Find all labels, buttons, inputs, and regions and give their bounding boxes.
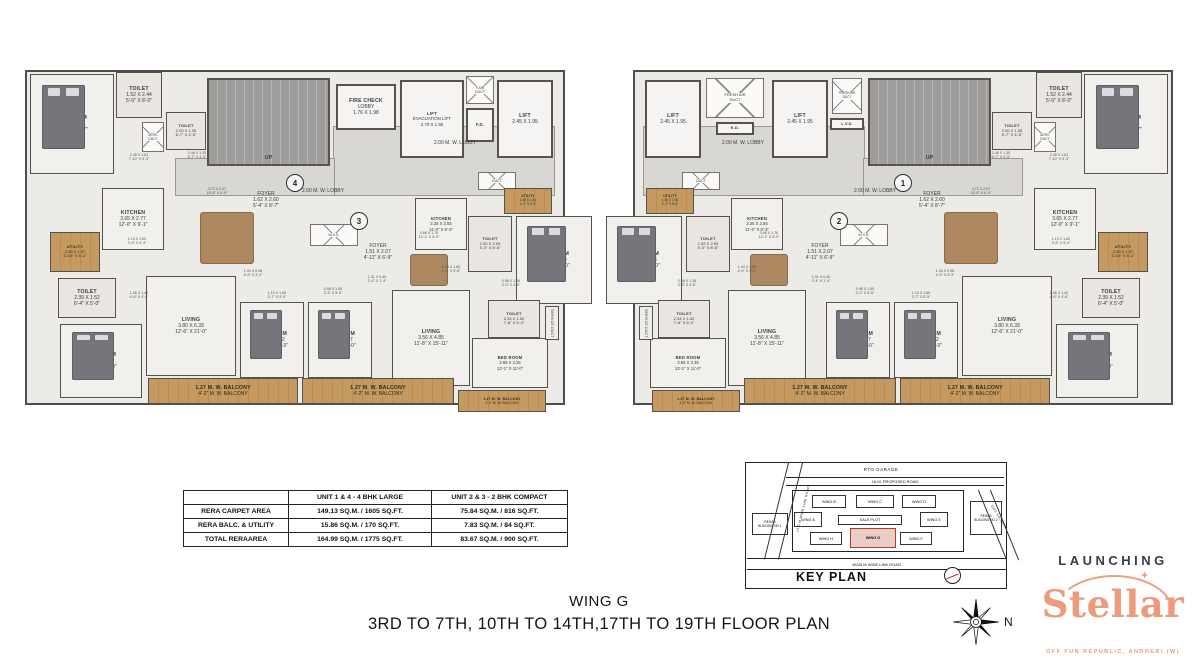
kp-wing-d: WING D bbox=[902, 495, 936, 508]
toilet: TOILET2.34 X 1.527'-8" X 5'-0" bbox=[658, 300, 710, 338]
utility: UTILITY2.09 X 1.576'-10" X 5'-2" bbox=[1098, 232, 1148, 272]
dim-note: 4.72 X 2.0715'-6" X 6'-9" bbox=[960, 184, 1002, 198]
fresh-air-duct: FRESH AIRDUCT bbox=[706, 78, 764, 118]
kp-wing-c: WING C bbox=[856, 495, 894, 508]
area-table-cell bbox=[184, 491, 289, 505]
kitchen: KITCHEN3.35 X 2.5511'-0" X 8'-3" bbox=[415, 198, 467, 250]
unit-number: 2 bbox=[830, 212, 848, 230]
balcony: 1.27 M. W. BALCONY4'-2" M. W. BALCONY bbox=[148, 378, 298, 404]
staircase: UP bbox=[207, 78, 330, 166]
bed-icon bbox=[250, 310, 282, 359]
area-table-cell: 75.84 SQ.M. / 816 SQ.FT. bbox=[432, 505, 568, 519]
bedroom: BED ROOM3.96 X 3.3513'-1" X 11'-0" bbox=[650, 338, 726, 388]
dim-note: 0.98 X 1.363'-3" X 4'-6" bbox=[490, 276, 532, 290]
dining-table bbox=[944, 212, 998, 264]
bed-icon bbox=[318, 310, 350, 359]
bedroom: BED ROOM3.17 X 3.1210'-5" X 10'-3" bbox=[240, 302, 304, 378]
brand-name: Stellar bbox=[1028, 582, 1198, 626]
sparkle-icon: ✦ bbox=[1140, 569, 1149, 582]
foyer: FOYER1.51 X 2.074'-11" X 6'-9" bbox=[352, 234, 404, 270]
dim-note: 2.35 X 1.617'-10" X 5'-3" bbox=[1038, 150, 1080, 164]
dim-note: 1.36 X 1.424'-6" X 4'-8" bbox=[1038, 288, 1080, 302]
kp-wing-b: WING B bbox=[812, 495, 846, 508]
bedroom: BED ROOM3.35 X 4.2711'-0" X 14'-0" bbox=[826, 302, 890, 378]
kp-road-line bbox=[764, 462, 789, 559]
toilet: TOILET1.52 X 2.595'-0" X 8'-6" bbox=[686, 216, 730, 272]
balcony: 1.27 M. W. BALCONY4'-2" M. W. BALCONY bbox=[900, 378, 1050, 404]
dim-note: 0.98 X 1.653'-3" X 5'-5" bbox=[844, 284, 886, 298]
living-room: LIVING3.56 X 4.8511'-8" X 15'-11" bbox=[728, 290, 806, 386]
staircase: UP bbox=[868, 78, 991, 166]
kp-proposed-road: 16 M. PROPOSED ROAD bbox=[786, 477, 1004, 486]
bedroom: BED ROOM3.35 X 3.6511'-0" X 12'-0" bbox=[606, 216, 682, 304]
toilet: TOILET2.00 X 1.356'-7" X 4'-5" bbox=[992, 112, 1032, 150]
dim-note: 1.01 X 0.403'-4" X 1'-4" bbox=[800, 272, 842, 286]
dim-note: 2.46 X 1.356'-7" X 4'-5" bbox=[980, 148, 1022, 162]
area-table-cell: 149.13 SQ.M. / 1605 SQ.FT. bbox=[289, 505, 432, 519]
dim-note: 1.10 X 1.663'-7" X 5'-5" bbox=[256, 288, 298, 302]
bedroom: BED ROOM3.71 X 4.1512'-2" X 13'-7" bbox=[30, 74, 114, 174]
kitchen: KITCHEN3.35 X 2.5511'-0" X 8'-3" bbox=[731, 198, 783, 250]
service-duct: SERVICE DUCT bbox=[639, 306, 653, 340]
lv-duct: L.V.D. bbox=[830, 118, 864, 130]
bed-icon bbox=[42, 85, 85, 150]
dim-note: 4.72 X 2.0715'-6" X 6'-9" bbox=[196, 184, 238, 198]
area-table-cell: 164.99 SQ.M. / 1775 SQ.FT. bbox=[289, 533, 432, 547]
balcony: 1.27 M. W. BALCONY4'-2" M. W. BALCONY bbox=[744, 378, 896, 404]
rera-area-table: UNIT 1 & 4 - 4 BHK LARGEUNIT 2 & 3 - 2 B… bbox=[183, 490, 568, 547]
dim-note: 1.36 X 1.424'-6" X 4'-8" bbox=[118, 288, 160, 302]
bed-icon bbox=[527, 226, 565, 283]
compass: N bbox=[952, 594, 1032, 650]
dim-note: 1.10 X 1.663'-7" X 5'-5" bbox=[900, 288, 942, 302]
toilet: TOILET2.39 X 1.526'-4" X 5'-0" bbox=[58, 278, 116, 318]
living-room: LIVING3.56 X 4.8511'-8" X 15'-11" bbox=[392, 290, 470, 386]
dim-note: 1.44 X 1.654'-9" X 5'-5" bbox=[430, 262, 472, 276]
kp-compass bbox=[944, 567, 961, 584]
dim-note: 0.98 X 1.363'-3" X 4'-6" bbox=[666, 276, 708, 290]
bed-icon bbox=[1068, 332, 1110, 380]
area-table-cell: UNIT 2 & 3 - 2 BHK COMPACT bbox=[432, 491, 568, 505]
logo-wordmark: ✦ Stellar bbox=[1028, 568, 1198, 644]
dim-note: 1.13 X 1.623'-9" X 5'-4" bbox=[116, 234, 158, 248]
unit-number: 3 bbox=[350, 212, 368, 230]
dim-note: 2.46 X 1.356'-7" X 4'-5" bbox=[176, 148, 218, 162]
kp-wing-g: WING G bbox=[850, 528, 896, 548]
toilet: TOILET1.52 X 2.595'-0" X 8'-6" bbox=[468, 216, 512, 272]
service-duct: SERV.DUCT bbox=[142, 122, 164, 152]
bed-icon bbox=[836, 310, 868, 359]
bedroom: BED ROOM3.35 X 4.2711'-0" X 14'-0" bbox=[308, 302, 372, 378]
bedroom: BED ROOM3.71 X 4.1512'-2" X 13'-7" bbox=[1084, 74, 1168, 174]
lobby-label: 2.00 M. W. LOBBY bbox=[688, 138, 798, 148]
area-table-cell: 15.86 SQ.M. / 170 SQ.FT. bbox=[289, 519, 432, 533]
dining-table bbox=[200, 212, 254, 264]
floor-plan-sheet: UPUPFIRE CHECKLOBBY1.76 X 1.98LIFTEVACUA… bbox=[0, 0, 1198, 666]
kp-wing-f: WING F bbox=[900, 532, 932, 545]
unit-number: 1 bbox=[894, 174, 912, 192]
unit-number: 4 bbox=[286, 174, 304, 192]
dim-note: 3.68 X 1.7612'-1" X 5'-9" bbox=[748, 228, 790, 242]
bed-icon bbox=[1096, 85, 1139, 150]
area-table-cell: 7.83 SQ.M. / 84 SQ.FT. bbox=[432, 519, 568, 533]
area-table-cell: UNIT 1 & 4 - 4 BHK LARGE bbox=[289, 491, 432, 505]
area-table-cell: 83.67 SQ.M. / 900 SQ.FT. bbox=[432, 533, 568, 547]
launching-label: LAUNCHING bbox=[1028, 553, 1198, 568]
area-table-cell: RERA BALC. & UTILITY bbox=[184, 519, 289, 533]
fresh-air-duct: FRESH AIRDUCT bbox=[832, 78, 862, 114]
toilet: TOILET2.00 X 1.356'-7" X 4'-5" bbox=[166, 112, 206, 150]
bed-icon bbox=[904, 310, 936, 359]
utility: UTILITY1.40 X 1.614'-7" X 5'-4" bbox=[504, 188, 552, 214]
electrical-duct: E.D. bbox=[716, 122, 754, 135]
lobby-label: 2.00 M. W. LOBBY bbox=[400, 138, 510, 148]
dim-note: 1.44 X 1.654'-9" X 5'-5" bbox=[726, 262, 768, 276]
key-plan-compass-needle bbox=[946, 573, 958, 579]
service-duct: SERVICE DUCT bbox=[545, 306, 559, 340]
foyer: FOYER1.51 X 2.074'-11" X 6'-9" bbox=[794, 234, 846, 270]
dim-note: 0.98 X 1.653'-3" X 5'-5" bbox=[312, 284, 354, 298]
fire-duct: F.D. bbox=[466, 108, 494, 142]
kp-rto-garage: RTO GARAGE bbox=[831, 465, 931, 474]
bedroom: BED ROOM3.59 X 4.2711'-9" X 14'-0" bbox=[1056, 324, 1138, 398]
toilet: TOILET1.52 X 2.445'-0" X 8'-0" bbox=[1036, 72, 1082, 118]
toilet: TOILET2.34 X 1.527'-8" X 5'-0" bbox=[488, 300, 540, 338]
compass-rose-icon bbox=[952, 598, 1000, 646]
fire-check-lobby: FIRE CHECKLOBBY1.76 X 1.98 bbox=[336, 84, 396, 130]
kp-wing-e: WING E bbox=[920, 512, 948, 527]
dim-note: 1.34 X 0.984'-5" X 3'-3" bbox=[924, 266, 966, 280]
bed-icon bbox=[617, 226, 655, 283]
mvs-duct: M.V.S. bbox=[840, 224, 888, 246]
kp-wing-h: WING H bbox=[810, 532, 842, 545]
project-logo: LAUNCHING ✦ Stellar OFF FUN REPUBLIC, AN… bbox=[1028, 553, 1198, 663]
floor-plan: UPUPFIRE CHECKLOBBY1.76 X 1.98LIFTEVACUA… bbox=[0, 0, 1198, 666]
balcony: 1.27 M. W. BALCONY4'-2" M. W. BALCONY bbox=[458, 390, 546, 412]
utility: UTILITY2.09 X 1.576'-10" X 5'-2" bbox=[50, 232, 100, 272]
service-duct: SERV.DUCT bbox=[1034, 122, 1056, 152]
brand-tagline: OFF FUN REPUBLIC, ANDHERI (W) bbox=[1028, 649, 1198, 655]
toilet: TOILET2.39 X 1.526'-4" X 5'-0" bbox=[1082, 278, 1140, 318]
area-table-cell: TOTAL RERAAREA bbox=[184, 533, 289, 547]
bedroom: BED ROOM3.59 X 4.2711'-9" X 14'-0" bbox=[60, 324, 142, 398]
bed-icon bbox=[72, 332, 114, 380]
key-plan: RTO GARAGE16 M. PROPOSED ROADWING BWING … bbox=[745, 462, 1007, 589]
dim-note: 3.68 X 1.7612'-1" X 5'-9" bbox=[408, 228, 450, 242]
bedroom: BED ROOM3.35 X 3.6511'-0" X 12'-0" bbox=[516, 216, 592, 304]
dim-note: 2.35 X 1.617'-10" X 5'-3" bbox=[118, 150, 160, 164]
kp-sale-plot: SALE PLOT bbox=[838, 515, 902, 525]
area-table: UNIT 1 & 4 - 4 BHK LARGEUNIT 2 & 3 - 2 B… bbox=[183, 490, 568, 547]
balcony: 1.27 M. W. BALCONY4'-2" M. W. BALCONY bbox=[302, 378, 454, 404]
balcony: 1.27 M. W. BALCONY4'-2" M. W. BALCONY bbox=[652, 390, 740, 412]
utility: UTILITY1.40 X 1.614'-7" X 5'-4" bbox=[646, 188, 694, 214]
area-table-cell: RERA CARPET AREA bbox=[184, 505, 289, 519]
bedroom: BED ROOM3.17 X 3.1210'-5" X 10'-3" bbox=[894, 302, 958, 378]
kp-title: KEY PLAN bbox=[796, 567, 906, 587]
bedroom: BED ROOM3.96 X 3.3513'-1" X 11'-0" bbox=[472, 338, 548, 388]
dim-note: 1.13 X 1.623'-9" X 5'-4" bbox=[1040, 234, 1082, 248]
dim-note: 1.01 X 0.403'-4" X 1'-4" bbox=[356, 272, 398, 286]
fresh-air-duct: F.AIRDUCT bbox=[466, 76, 494, 104]
toilet: TOILET1.52 X 2.445'-0" X 8'-0" bbox=[116, 72, 162, 118]
compass-north-label: N bbox=[1004, 615, 1013, 629]
mvs-duct: M.V.S. bbox=[310, 224, 358, 246]
dim-note: 1.34 X 0.984'-5" X 3'-3" bbox=[232, 266, 274, 280]
